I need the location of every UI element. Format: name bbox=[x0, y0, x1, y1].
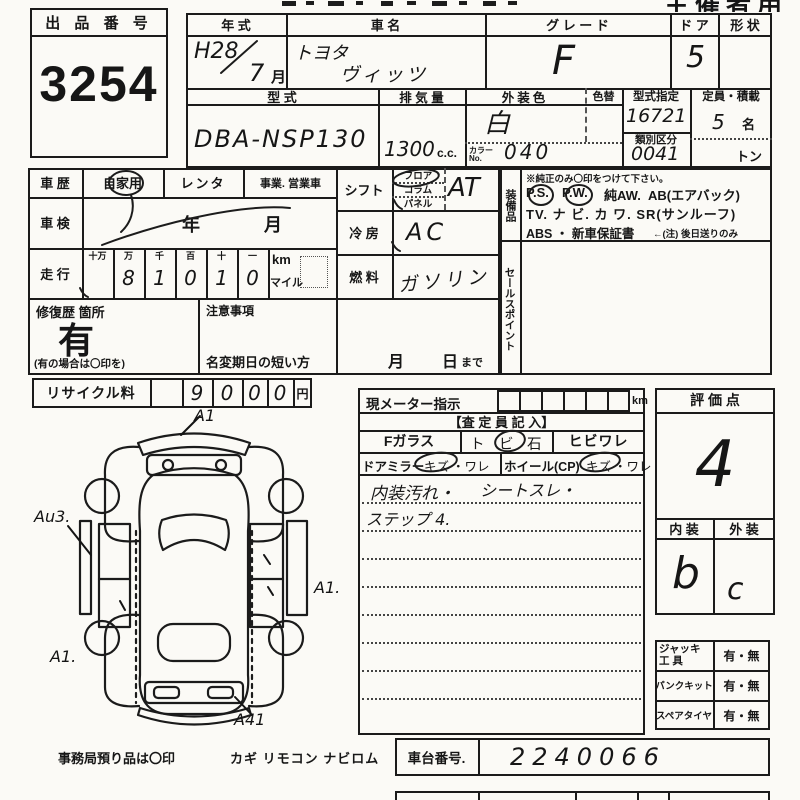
shift-option-floor: フロア bbox=[392, 168, 444, 182]
caution-label: 注意事項 bbox=[206, 302, 254, 319]
wheel-front-right bbox=[269, 479, 303, 513]
color-no-label2: No. bbox=[469, 154, 482, 163]
capacity-label: 定員・積載 bbox=[690, 87, 772, 105]
grid-line bbox=[520, 242, 522, 375]
note-rule-line bbox=[362, 530, 641, 532]
mileage-digit: 1 bbox=[144, 261, 175, 295]
grid-line bbox=[186, 35, 772, 37]
history-business: 事業. 営業車 bbox=[243, 168, 338, 197]
mileage-unit-mile: マイル bbox=[270, 274, 303, 290]
caution-day: 日 bbox=[442, 348, 458, 372]
mileage-header: 十万 bbox=[82, 249, 113, 261]
right-rear-fender-shape bbox=[249, 615, 283, 707]
meter-label: 現メーター指示 bbox=[366, 393, 461, 413]
auction-sheet: 主催者用 出 品 番 号 3254 年 式 車 名 グ レ ー ド ド ア 形 … bbox=[0, 0, 800, 800]
damage-mark-top: A1 bbox=[193, 406, 215, 425]
jack-tools-value: 有・無 bbox=[713, 640, 770, 670]
year-label: 年 式 bbox=[186, 13, 286, 35]
grade-label: グ レ ー ド bbox=[485, 13, 670, 35]
grid-line bbox=[668, 791, 670, 800]
car-damage-diagram: A1 Au3. A1. A1. A41 bbox=[28, 403, 353, 740]
inspection-year: 年 bbox=[182, 211, 200, 237]
office-deposit-items: カギ リモコン ナビロム bbox=[230, 748, 379, 767]
displacement-unit: c.c. bbox=[437, 146, 457, 160]
sheet-use-label: 主催者用 bbox=[664, 0, 800, 12]
assessor-header: 【査 定 員 記 入】 bbox=[358, 412, 645, 430]
type-designation-value: 16721 bbox=[626, 105, 686, 127]
shape-value-empty bbox=[718, 35, 772, 88]
grid-line bbox=[637, 791, 639, 800]
model-name-value: ヴィッツ bbox=[340, 60, 428, 87]
grid-line bbox=[563, 390, 565, 412]
mileage-digit bbox=[82, 261, 113, 295]
chassis-number-label: 車台番号. bbox=[395, 738, 478, 776]
grid-line bbox=[519, 390, 521, 412]
mileage-unit-km: km bbox=[272, 252, 291, 267]
exterior-color-value: 白 bbox=[484, 103, 510, 140]
cut-off-bottom-table bbox=[395, 791, 770, 800]
model-code-value: DBA-NSP130 bbox=[194, 125, 368, 153]
taillight-shape bbox=[154, 687, 179, 698]
note-rule-line bbox=[362, 642, 641, 644]
door-mirror-label: ドアミラー bbox=[362, 456, 424, 475]
jack-label-line1: ジャッキ bbox=[659, 643, 700, 655]
mileage-header: 千 bbox=[144, 249, 175, 261]
inspection-month: 月 bbox=[264, 211, 282, 237]
damage-mark-right: A1. bbox=[313, 578, 340, 597]
equipment-line3-note: ←(注) 後日送りのみ bbox=[653, 226, 738, 240]
door-mirror-option-ware: ・ワレ bbox=[452, 456, 490, 475]
shape-label: 形 状 bbox=[718, 13, 772, 35]
windshield-shape bbox=[159, 515, 229, 551]
taillight-shape bbox=[208, 687, 233, 698]
evaluation-label: 評 価 点 bbox=[655, 389, 775, 411]
jack-tools-label: ジャッキ工 具 bbox=[659, 643, 700, 667]
damage-mark-bottom-left: A1. bbox=[49, 647, 76, 666]
auction-number-label: 出 品 番 号 bbox=[32, 10, 166, 37]
left-rear-fender-shape bbox=[105, 615, 139, 707]
chassis-number-value: 2240066 bbox=[510, 743, 666, 771]
shift-label: シフト bbox=[336, 168, 392, 210]
wheel-option-kizu: キズ bbox=[586, 456, 611, 475]
shift-option-column: コラム bbox=[392, 182, 444, 196]
type-designation-label: 型式指定 bbox=[622, 87, 690, 105]
caution-until: まで bbox=[461, 354, 483, 370]
note-rule-line bbox=[362, 698, 641, 700]
car-body-outline bbox=[139, 468, 248, 714]
grid-line bbox=[460, 430, 462, 452]
note-rule-line bbox=[362, 558, 641, 560]
displacement-label: 排 気 量 bbox=[378, 87, 465, 105]
mileage-unit-checkbox bbox=[300, 256, 328, 288]
front-glass-option-ishi: 石 bbox=[527, 433, 542, 454]
door-value: 5 bbox=[686, 40, 705, 75]
front-glass-crack-option: ヒビワレ bbox=[552, 430, 645, 452]
history-private: 自家用 bbox=[82, 168, 163, 197]
rear-panel-shape bbox=[145, 682, 243, 703]
equipment-item-pw: P.W. bbox=[562, 185, 588, 200]
year-value: H28 bbox=[194, 39, 239, 64]
right-sill-panel bbox=[287, 521, 307, 615]
repair-note: (有の場合は〇印を) bbox=[34, 356, 125, 371]
history-rental: レンタ bbox=[163, 168, 243, 197]
door-mirror-option-kizu: キズ bbox=[424, 456, 449, 475]
damage-mark-left: Au3. bbox=[33, 507, 70, 526]
equipment-label: 装備品 bbox=[500, 170, 520, 240]
grid-line bbox=[520, 168, 522, 242]
interior-grade: b bbox=[672, 548, 700, 599]
auction-number-box: 出 品 番 号 3254 bbox=[30, 8, 168, 158]
spare-tire-label: スペアタイヤ bbox=[655, 700, 713, 730]
wheel-front-left bbox=[85, 479, 119, 513]
mileage-header: 十 bbox=[206, 249, 237, 261]
shift-value: AT bbox=[448, 173, 480, 203]
wheel-label: ホイール(CP) bbox=[504, 456, 580, 475]
note-rule-line bbox=[362, 614, 641, 616]
grid-line bbox=[478, 738, 480, 776]
right-front-fender-shape bbox=[249, 447, 283, 542]
equipment-item-aw: 純AW. bbox=[604, 185, 641, 204]
left-front-fender-shape bbox=[105, 447, 139, 542]
mileage-digit: 0 bbox=[175, 261, 206, 295]
grid-line bbox=[585, 390, 587, 412]
assessor-note-seat: シートスレ・ bbox=[480, 477, 576, 501]
grid-line bbox=[500, 452, 502, 474]
puncture-kit-value: 有・無 bbox=[713, 670, 770, 700]
color-no-value: 040 bbox=[504, 140, 551, 164]
cooling-label: 冷 房 bbox=[336, 210, 392, 254]
capacity-value: 5 bbox=[712, 110, 725, 134]
wheel-option-ware: ・ワレ bbox=[614, 456, 652, 475]
month-unit: 月 bbox=[271, 66, 286, 87]
equipment-item-airbag: AB(エアバック) bbox=[648, 185, 740, 204]
right-door-panel bbox=[250, 524, 283, 627]
headlight-icon bbox=[216, 460, 226, 470]
office-deposit-note: 事務局預り品は〇印 bbox=[58, 748, 175, 767]
model-code-label: 型 式 bbox=[186, 87, 378, 105]
sales-point-box bbox=[500, 242, 772, 375]
spare-tire-value: 有・無 bbox=[713, 700, 770, 730]
cut-off-title-marks bbox=[282, 1, 672, 9]
grid-line bbox=[478, 791, 480, 800]
equipment-line3: ABS ・ 新車保証書 bbox=[526, 223, 634, 242]
equipment-line2: TV. ナ ビ. カ ワ. SR(サンルーフ) bbox=[526, 204, 736, 223]
note-rule-line bbox=[362, 586, 641, 588]
puncture-kit-label: パンクキット bbox=[655, 670, 713, 700]
grid-line bbox=[655, 538, 775, 540]
grid-line bbox=[575, 791, 577, 800]
displacement-value: 1300 bbox=[384, 137, 435, 161]
mileage-header: 万 bbox=[113, 249, 144, 261]
inspection-label: 車 検 bbox=[28, 197, 82, 248]
grade-value: F bbox=[552, 38, 575, 84]
sales-point-label: セールスポイント bbox=[500, 246, 520, 372]
mileage-digit: 0 bbox=[237, 261, 268, 295]
mileage-header: 百 bbox=[175, 249, 206, 261]
cooling-value: AC bbox=[406, 218, 447, 246]
grid-line bbox=[28, 298, 198, 300]
history-label: 車 歴 bbox=[28, 168, 82, 197]
shift-option-divider bbox=[444, 168, 446, 210]
jack-label-line2: 工 具 bbox=[659, 655, 683, 667]
mileage-digit: 1 bbox=[206, 261, 237, 295]
mileage-digit: 8 bbox=[113, 261, 144, 295]
damage-mark-bottom-right: A41 bbox=[233, 710, 265, 729]
exterior-label: 外 装 bbox=[713, 519, 775, 537]
car-name-label: 車 名 bbox=[286, 13, 485, 35]
equipment-note: ※純正のみ〇印をつけて下さい。 bbox=[526, 171, 669, 185]
grid-line bbox=[541, 390, 543, 412]
exterior-color-label: 外装色 bbox=[465, 87, 585, 105]
assessor-note-step: ステップ 4. bbox=[366, 506, 450, 530]
color-change-label: 色替 bbox=[585, 87, 622, 105]
assessor-note-interior: 内装汚れ・ bbox=[370, 479, 455, 504]
grid-line bbox=[268, 248, 270, 298]
load-unit: トン bbox=[736, 146, 762, 165]
interior-label: 内 装 bbox=[655, 519, 713, 537]
grid-line bbox=[607, 390, 609, 412]
capacity-unit: 名 bbox=[742, 114, 755, 133]
evaluation-score: 4 bbox=[655, 412, 775, 518]
auction-number-value: 3254 bbox=[32, 46, 166, 122]
mileage-header: 一 bbox=[237, 249, 268, 261]
caution-month: 月 bbox=[388, 348, 404, 372]
front-bumper-shape bbox=[138, 434, 250, 456]
meter-unit: km bbox=[632, 395, 648, 407]
fuel-label: 燃 料 bbox=[336, 254, 392, 298]
equipment-item-ps: P.S. bbox=[526, 185, 549, 200]
class-division-value: 0041 bbox=[631, 143, 679, 165]
front-glass-option-bi: ビ bbox=[499, 433, 514, 454]
headlight-icon bbox=[163, 460, 173, 470]
shift-option-panel: パネル bbox=[392, 196, 444, 210]
rear-window-shape bbox=[158, 624, 230, 661]
front-glass-option-to: ト bbox=[470, 433, 485, 454]
door-label: ド ア bbox=[670, 13, 718, 35]
front-glass-label: Fガラス bbox=[358, 430, 460, 452]
capacity-divider bbox=[690, 138, 772, 140]
left-sill-panel bbox=[80, 521, 91, 614]
mileage-label: 走 行 bbox=[28, 248, 82, 298]
exterior-grade: c bbox=[727, 572, 744, 607]
month-value: 7 bbox=[249, 59, 264, 87]
caution-text: 名変期日の短い方 bbox=[206, 352, 310, 371]
note-rule-line bbox=[362, 670, 641, 672]
